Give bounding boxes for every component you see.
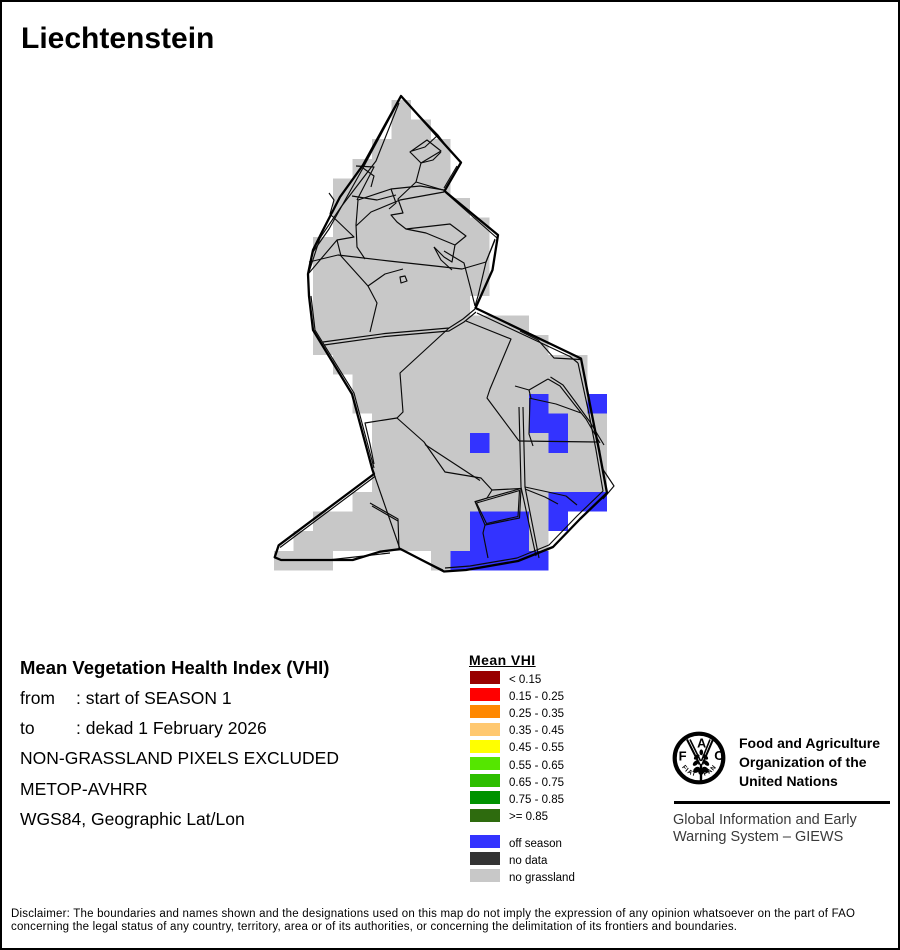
svg-text:A: A: [697, 737, 706, 751]
svg-text:F: F: [679, 749, 687, 764]
svg-text:O: O: [714, 748, 724, 763]
